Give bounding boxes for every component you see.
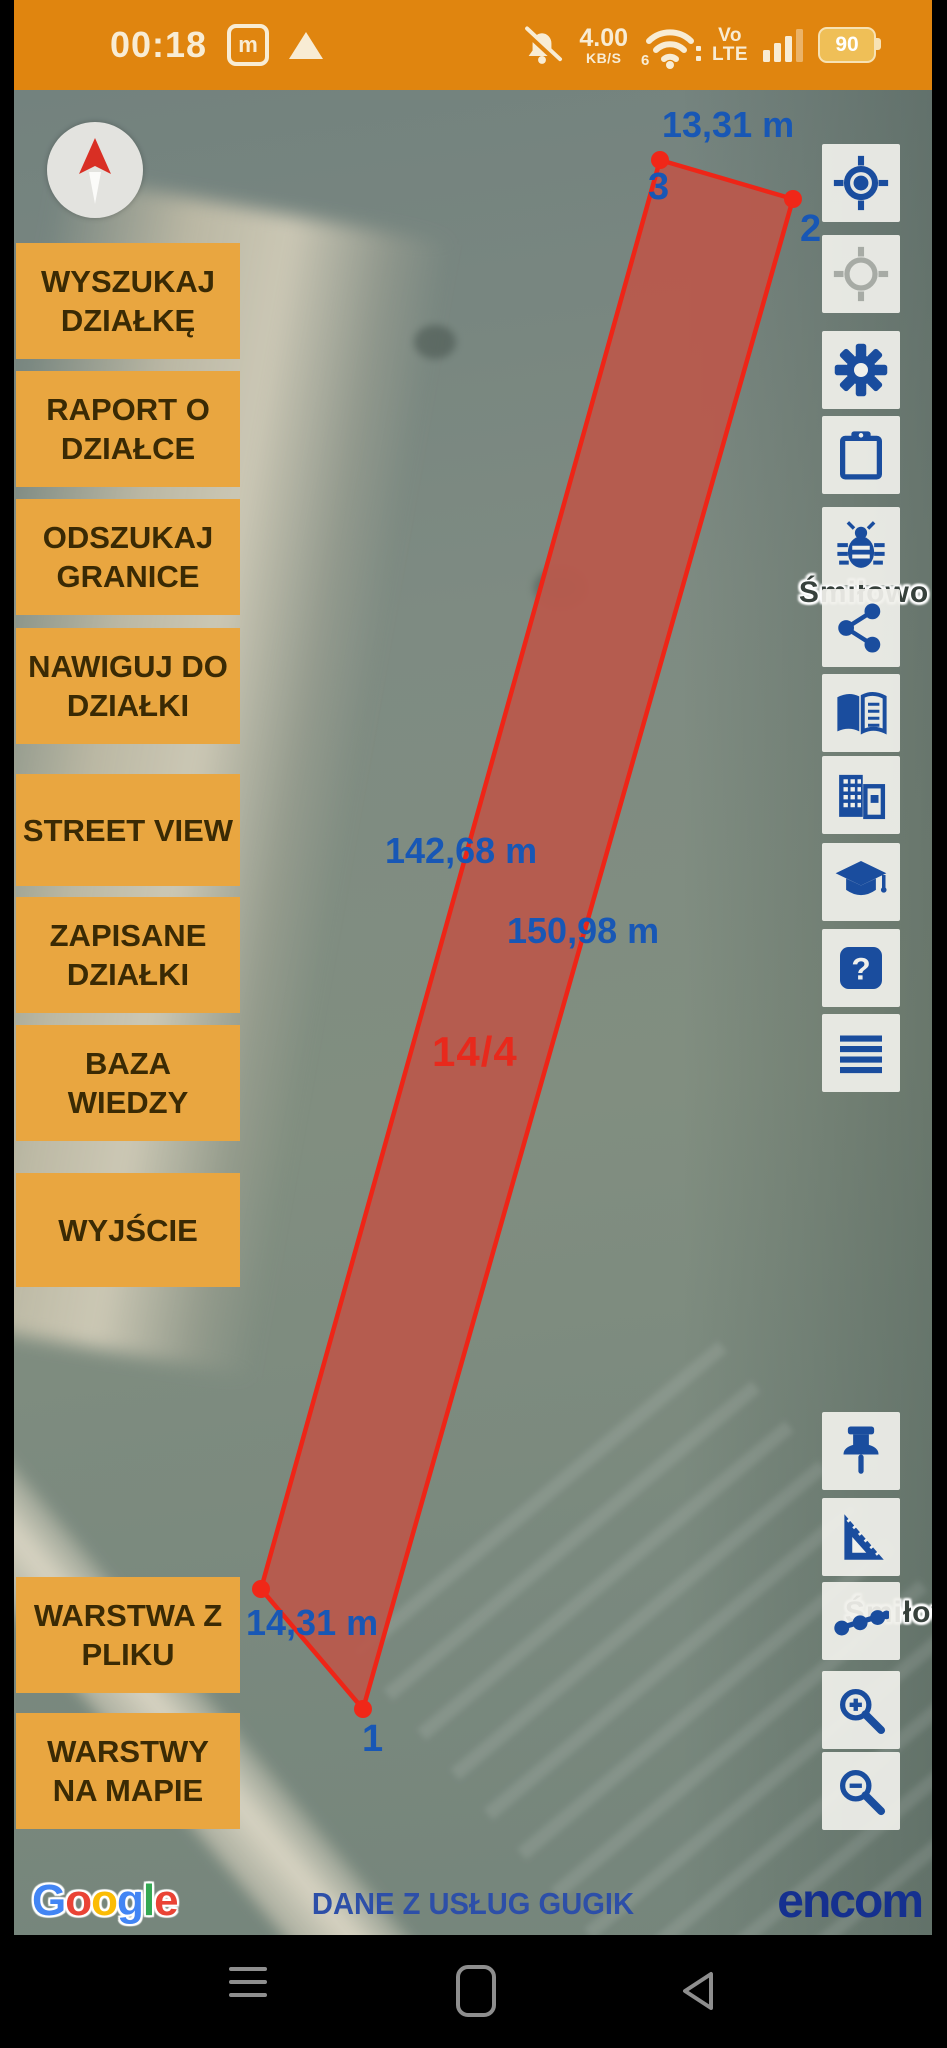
buildings-button[interactable] [822, 756, 900, 834]
app-screenshot: { "status_bar": { "time": "00:18", "sim_… [0, 0, 947, 2048]
volte-indicator: Vo LTE [712, 26, 748, 64]
pin-button[interactable] [822, 1412, 900, 1490]
vertex-label-1: 1 [362, 1718, 383, 1761]
edge-length-top: 13,31 m [662, 104, 794, 146]
vertex-4-dot [252, 1580, 270, 1598]
bug-report-icon [833, 518, 889, 574]
zoom-in-button[interactable] [822, 1671, 900, 1749]
menu-button-warstwy-na-mapie[interactable]: WARSTWY NA MAPIE [16, 1713, 240, 1829]
menu-button-warstwa-z-pliku[interactable]: WARSTWA Z PLIKU [16, 1577, 240, 1693]
vertex-1-dot [354, 1700, 372, 1718]
edge-length-left: 142,68 m [385, 830, 537, 872]
edge-length-right: 150,98 m [507, 910, 659, 952]
gps-not-fixed-icon [833, 246, 889, 302]
graduation-cap-icon [833, 854, 889, 910]
wifi-icon: 6 [643, 21, 697, 69]
menu-button-odszukaj-granice[interactable]: ODSZUKAJ GRANICE [16, 499, 240, 615]
gps-fixed-icon [833, 155, 889, 211]
status-left-cluster: 00:18 m [110, 0, 323, 90]
menu-button-raport-o-dzialce[interactable]: RAPORT O DZIAŁCE [16, 371, 240, 487]
gps-fixed-button[interactable] [822, 144, 900, 222]
android-navigation-bar [0, 1935, 947, 2048]
data-source-text: DANE Z USŁUG GUGIK [312, 1886, 634, 1922]
status-bar: 00:18 m 4.00 KB/S 6 [14, 0, 932, 90]
map-attribution: Google DANE Z USŁUG GUGIK encom [14, 1874, 932, 1935]
layers-list-icon [833, 1025, 889, 1081]
settings-button[interactable] [822, 331, 900, 409]
zoom-in-icon [833, 1682, 889, 1738]
network-speed: 4.00 KB/S [579, 26, 628, 65]
menu-button-wyjscie[interactable]: WYJŚCIE [16, 1173, 240, 1287]
notifications-off-icon [520, 23, 564, 67]
polyline-button[interactable] [822, 1582, 900, 1660]
polyline-points-icon [833, 1593, 889, 1649]
vertex-label-2: 2 [800, 208, 821, 251]
vertex-2-dot [784, 190, 802, 208]
knowledge-book-button[interactable] [822, 674, 900, 752]
wifi-band-label: 6 [641, 52, 649, 69]
help-button[interactable]: ? [822, 929, 900, 1007]
vpn-triangle-icon [289, 32, 323, 59]
phone-screen: 00:18 m 4.00 KB/S 6 [14, 0, 932, 1935]
menu-icon[interactable] [229, 1967, 267, 2006]
battery-percent: 90 [835, 33, 858, 57]
settings-gear-icon [833, 342, 889, 398]
wifi-activity-dots [696, 46, 701, 61]
vertex-label-3: 3 [648, 166, 669, 209]
signal-bars-icon [763, 28, 803, 62]
battery-icon: 90 [818, 27, 876, 63]
svg-text:?: ? [851, 950, 870, 986]
edge-length-bottom: 14,31 m [246, 1602, 378, 1644]
sim-carrier-badge: m [227, 24, 269, 66]
menu-button-street-view[interactable]: STREET VIEW [16, 774, 240, 886]
share-button[interactable] [822, 589, 900, 667]
status-right-cluster: 4.00 KB/S 6 Vo LTE 90 [520, 0, 876, 90]
back-triangle-icon[interactable] [678, 1969, 722, 2018]
buildings-icon [833, 767, 889, 823]
set-square-icon [833, 1509, 889, 1565]
clipboard-icon [833, 427, 889, 483]
recents-square-icon[interactable] [455, 1963, 497, 2024]
measure-button[interactable] [822, 1498, 900, 1576]
education-button[interactable] [822, 843, 900, 921]
zoom-out-icon [833, 1763, 889, 1819]
gps-not-fixed-button[interactable] [822, 235, 900, 313]
parcel-number-label: 14/4 [432, 1028, 518, 1076]
compass-rose[interactable] [47, 122, 143, 218]
share-icon [833, 600, 889, 656]
clipboard-button[interactable] [822, 416, 900, 494]
menu-button-wyszukaj-dzialke[interactable]: WYSZUKAJ DZIAŁKĘ [16, 243, 240, 359]
google-logo: Google [32, 1876, 178, 1926]
menu-button-baza-wiedzy[interactable]: BAZA WIEDZY [16, 1025, 240, 1141]
bug-report-button[interactable] [822, 507, 900, 585]
menu-button-zapisane-dzialki[interactable]: ZAPISANE DZIAŁKI [16, 897, 240, 1013]
open-book-icon [833, 685, 889, 741]
layers-list-button[interactable] [822, 1014, 900, 1092]
compass-needle-icon [47, 122, 143, 218]
encom-logo: encom [777, 1874, 922, 1929]
help-question-icon: ? [833, 940, 889, 996]
clock: 00:18 [110, 24, 207, 66]
menu-button-nawiguj-do-dzialki[interactable]: NAWIGUJ DO DZIAŁKI [16, 628, 240, 744]
zoom-out-button[interactable] [822, 1752, 900, 1830]
push-pin-icon [833, 1423, 889, 1479]
